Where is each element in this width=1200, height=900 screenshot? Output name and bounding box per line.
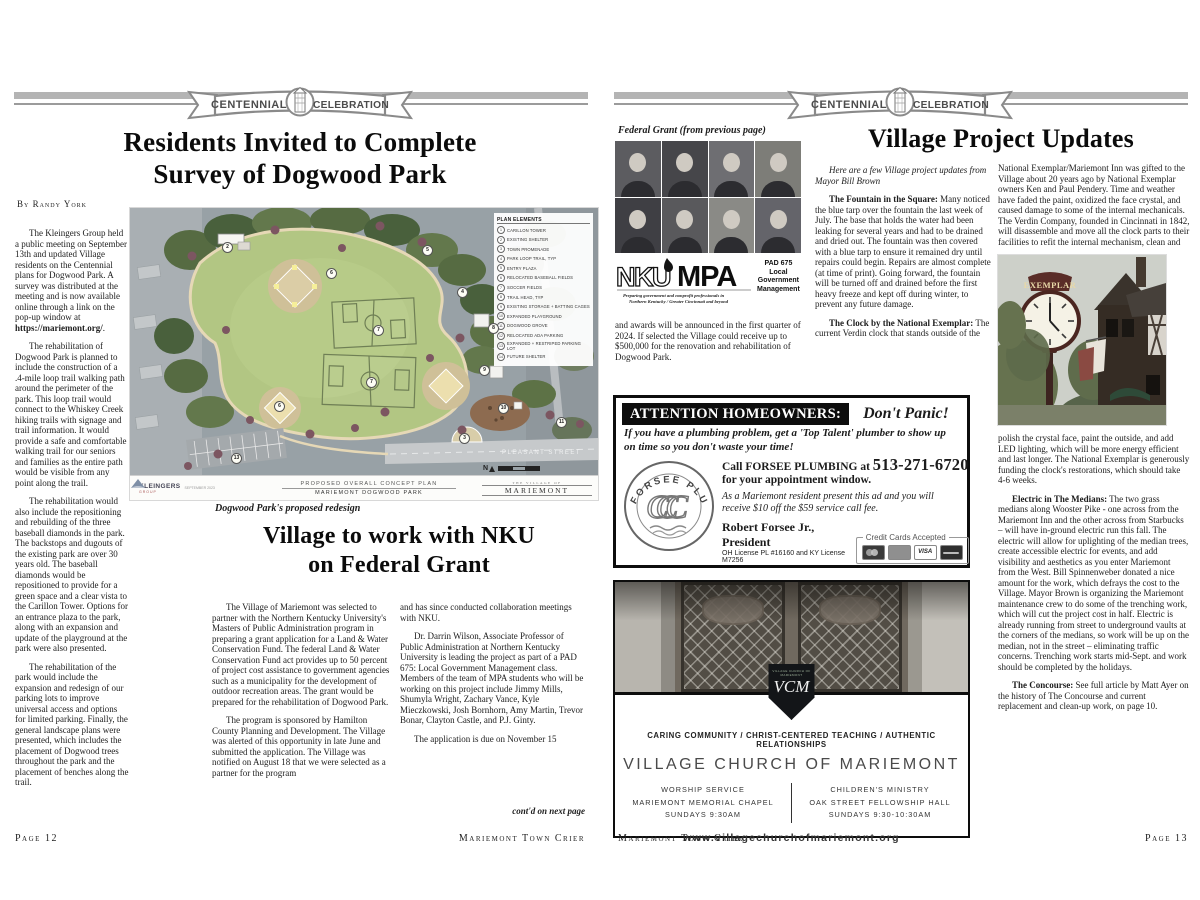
headshot-photo xyxy=(709,198,755,254)
paragraph-lead: The Fountain in the Square: xyxy=(829,194,938,204)
banner-text-celebration: CELEBRATION xyxy=(313,100,389,111)
continued-notice: cont'd on next page xyxy=(400,806,585,816)
firm-sub: GROUP xyxy=(139,490,181,494)
legend-number: 9 xyxy=(497,303,505,311)
nku-article-column-1: The Village of Mariemont was selected to… xyxy=(212,602,392,786)
byline: By Randy York xyxy=(17,199,87,209)
north-arrow: N xyxy=(483,465,540,472)
map-marker: 11 xyxy=(556,417,567,428)
visa-icon: VISA xyxy=(914,545,937,560)
resident-offer: As a Mariemont resident present this ad … xyxy=(722,491,952,515)
paragraph: and awards will be announced in the firs… xyxy=(615,320,802,362)
legend-number: 8 xyxy=(497,293,505,301)
legend-number: 10 xyxy=(497,312,505,320)
legend-label: RELOCATED BASEBALL FIELDS xyxy=(507,275,573,280)
paragraph: Electric in The Medians: The two grass m… xyxy=(998,494,1190,673)
legend-number: 6 xyxy=(497,274,505,282)
mastercard-icon xyxy=(862,545,885,560)
legend-number: 1 xyxy=(497,226,505,234)
dont-panic-text: Don't Panic! xyxy=(863,405,949,423)
logo-tagline-2: Northern Kentucky / Greater Cincinnati a… xyxy=(628,299,729,304)
pad-line: Local xyxy=(757,269,800,278)
page-number: Page 12 xyxy=(15,833,58,844)
legend-number: 2 xyxy=(497,236,505,244)
title-line-2: Survey of Dogwood Park xyxy=(70,158,530,190)
paragraph: Dr. Darrin Wilson, Associate Professor o… xyxy=(400,631,585,726)
legend-item: 6 RELOCATED BASEBALL FIELDS xyxy=(497,274,590,282)
survey-article-title: Residents Invited to Complete Survey of … xyxy=(70,126,530,190)
paragraph: polish the crystal face, paint the outsi… xyxy=(998,433,1190,486)
page-12: CENTENNIAL CELEBRATION Residents Invited… xyxy=(0,0,600,900)
paragraph: The Concourse: See full article by Matt … xyxy=(998,680,1190,712)
paragraph: The Fountain in the Square: Many noticed… xyxy=(815,194,995,310)
updates-column-1: Here are a few Village project updates f… xyxy=(815,165,995,347)
paragraph: The Village of Mariemont was selected to… xyxy=(212,602,392,707)
paragraph: The Clock by the National Exemplar: The … xyxy=(815,318,995,339)
map-marker: 4 xyxy=(457,287,468,298)
legend-label: CARILLON TOWER xyxy=(507,228,546,233)
plan-date: SEPTEMBER 2023 xyxy=(185,486,215,490)
phone-number: 513-271-6720 xyxy=(873,455,969,474)
legend-label: TRAIL HEAD, TYP xyxy=(507,295,543,300)
legend-item: 7 SOCCER FIELDS xyxy=(497,284,590,292)
legend-label: SOCCER FIELDS xyxy=(507,285,542,290)
map-marker: 13 xyxy=(231,453,242,464)
title-line-2: on Federal Grant xyxy=(212,551,586,580)
page-13: CENTENNIAL CELEBRATION Federal Grant (fr… xyxy=(600,0,1200,900)
legend-item: 3 TOWN PROMENADE xyxy=(497,245,590,253)
legend-item: 10 EXPANDED PLAYGROUND xyxy=(497,312,590,320)
legend-label: EXISTING SHELTER xyxy=(507,237,548,242)
banner-text-centennial: CENTENNIAL xyxy=(811,99,887,111)
title-line-1: Village to work with NKU xyxy=(212,522,586,551)
legend-item: 8 TRAIL HEAD, TYP xyxy=(497,293,590,301)
map-marker: 2 xyxy=(222,242,233,253)
map-marker: 3 xyxy=(459,433,470,444)
legend-item: 1 CARILLON TOWER xyxy=(497,226,590,234)
call-line-2: for your appointment window. xyxy=(722,474,969,486)
village-line2: MARIEMONT xyxy=(482,485,592,496)
legend-number: 7 xyxy=(497,284,505,292)
discover-icon xyxy=(940,545,963,560)
info-line: SUNDAYS 9:30-10:30AM xyxy=(792,809,968,822)
north-label: N xyxy=(483,465,488,472)
childrens-ministry-info: CHILDREN'S MINISTRYOAK STREET FELLOWSHIP… xyxy=(792,784,968,822)
map-marker: 8 xyxy=(488,323,499,334)
nku-mpa-logo: NKU MPA Preparing government and nonprof… xyxy=(615,256,801,314)
paragraph: The application is due on November 15 xyxy=(400,734,585,745)
paragraph-lead: The Clock by the National Exemplar: xyxy=(829,318,973,328)
legend-list: 1 CARILLON TOWER 2 EXISTING SHELTER 3 TO… xyxy=(497,226,590,361)
paragraph: National Exemplar/Mariemont Inn was gift… xyxy=(998,163,1190,247)
plan-title-line1: PROPOSED OVERALL CONCEPT PLAN xyxy=(256,481,482,487)
legend-item: 9 EXISTING STORAGE + BATTING CAGES xyxy=(497,303,590,311)
info-line: OAK STREET FELLOWSHIP HALL xyxy=(792,797,968,810)
centennial-banner: CENTENNIAL CELEBRATION xyxy=(785,84,1015,131)
legend-label: ENTRY PLAZA xyxy=(507,266,537,271)
church-name: VILLAGE CHURCH OF MARIEMONT xyxy=(615,756,968,774)
legend-item: 11 DOGWOOD GROVE xyxy=(497,322,590,330)
nku-article-column-2: and has since conducted collaboration me… xyxy=(400,602,585,752)
federal-grant-text: and awards will be announced in the firs… xyxy=(615,320,802,370)
headshot-photo xyxy=(662,198,708,254)
call-text: Call FORSEE PLUMBING at xyxy=(722,461,870,473)
crest-monogram: VCM xyxy=(769,677,815,697)
ad-tagline: If you have a plumbing problem, get a 'T… xyxy=(624,427,959,454)
plan-title-line2: MARIEMONT DOGWOOD PARK xyxy=(282,488,456,496)
park-concept-plan-image: PLEASANT STREET xyxy=(130,208,598,500)
clock-sign-text: EXEMPLAR xyxy=(1024,280,1077,290)
updates-column-2: National Exemplar/Mariemont Inn was gift… xyxy=(998,163,1190,720)
paragraph: The rehabilitation of Dogwood Park is pl… xyxy=(15,341,129,488)
paragraph-text: Many noticed the blue tarp over the foun… xyxy=(815,194,991,309)
centennial-banner: CENTENNIAL CELEBRATION xyxy=(185,84,415,131)
exemplar-clock-photo: EXEMPLAR xyxy=(998,255,1166,425)
paragraph-text: The Kleingers Group held a public meetin… xyxy=(15,228,127,322)
paragraph-text: The two grass medians along Wooster Pike… xyxy=(998,494,1189,672)
plan-title-block: KLEINGERS GROUP SEPTEMBER 2023 PROPOSED … xyxy=(130,475,598,500)
pad-675-label: PAD 675LocalGovernmentManagement xyxy=(757,256,800,294)
nku-letters: NKU xyxy=(616,262,670,292)
kleingers-logo: KLEINGERS GROUP SEPTEMBER 2023 xyxy=(136,483,256,494)
plan-elements-legend: PLAN ELEMENTS 1 CARILLON TOWER 2 EXISTIN… xyxy=(494,213,593,366)
forsee-plumbing-ad: ATTENTION HOMEOWNERS: Don't Panic! If yo… xyxy=(613,395,970,568)
legend-label: RELOCATED ADA PARKING xyxy=(507,333,563,338)
banner-text-celebration: CELEBRATION xyxy=(913,100,989,111)
legend-title: PLAN ELEMENTS xyxy=(497,217,590,224)
scale-bar xyxy=(498,466,512,471)
banner-text-centennial: CENTENNIAL xyxy=(211,99,287,111)
headshot-photo xyxy=(615,141,661,197)
url-text: https://mariemont.org/ xyxy=(15,323,103,333)
legend-number: 13 xyxy=(497,342,505,350)
legend-label: TOWN PROMENADE xyxy=(507,247,549,252)
info-line: CHILDREN'S MINISTRY xyxy=(792,784,968,797)
paragraph: The Kleingers Group held a public meetin… xyxy=(15,228,129,333)
kleingers-triangle-icon xyxy=(130,476,146,490)
legend-label: EXPANDED + RESTRIPED PARKING LOT xyxy=(507,341,590,351)
village-of-mariemont-logo: THE VILLAGE OF MARIEMONT xyxy=(482,481,592,496)
paragraph: The rehabilitation of the park would inc… xyxy=(15,662,129,788)
map-marker: 10 xyxy=(498,403,509,414)
map-caption: Dogwood Park's proposed redesign xyxy=(215,503,360,514)
legend-label: PARK LOOP TRAIL, TYP xyxy=(507,256,556,261)
village-church-ad: VILLAGE CHURCH OF MARIEMONT VCM CARING C… xyxy=(613,580,970,838)
paragraph: The rehabilitation would also include th… xyxy=(15,496,129,654)
info-line: SUNDAYS 9:30AM xyxy=(615,809,791,822)
pad-line: Government xyxy=(757,277,800,286)
scale-bar xyxy=(512,466,526,471)
legend-label: EXISTING STORAGE + BATTING CAGES xyxy=(507,304,590,309)
legend-label: FUTURE SHELTER xyxy=(507,354,546,359)
legend-item: 4 PARK LOOP TRAIL, TYP xyxy=(497,255,590,263)
worship-service-info: WORSHIP SERVICEMARIEMONT MEMORIAL CHAPEL… xyxy=(615,784,791,822)
legend-number: 4 xyxy=(497,255,505,263)
legend-item: 13 EXPANDED + RESTRIPED PARKING LOT xyxy=(497,341,590,351)
church-crest: VILLAGE CHURCH OF MARIEMONT VCM xyxy=(769,664,815,720)
page-number: Page 13 xyxy=(1145,833,1188,844)
attention-header: ATTENTION HOMEOWNERS: xyxy=(622,403,849,425)
info-line: MARIEMONT MEMORIAL CHAPEL xyxy=(615,797,791,810)
legend-number: 12 xyxy=(497,332,505,340)
credit-cards-box: Credit Cards Accepted VISA xyxy=(856,537,969,564)
info-line: WORSHIP SERVICE xyxy=(615,784,791,797)
legend-item: 14 FUTURE SHELTER xyxy=(497,353,590,361)
pad-line: Management xyxy=(757,286,800,295)
crest-caption: VILLAGE CHURCH OF MARIEMONT xyxy=(769,664,815,677)
mpa-letters: MPA xyxy=(677,261,737,293)
headshot-photo xyxy=(755,141,801,197)
amex-icon xyxy=(888,545,911,560)
publication-name: Mariemont Town Crier xyxy=(459,833,585,844)
nku-article-title: Village to work with NKU on Federal Gran… xyxy=(212,522,586,580)
credit-cards-label: Credit Cards Accepted xyxy=(863,533,949,542)
magazine-spread: CENTENNIAL CELEBRATION Residents Invited… xyxy=(0,0,1200,900)
paragraph: and has since conducted collaboration me… xyxy=(400,602,585,623)
paragraph: The program is sponsored by Hamilton Cou… xyxy=(212,715,392,778)
plan-title: PROPOSED OVERALL CONCEPT PLAN MARIEMONT … xyxy=(256,481,482,496)
scale-bar xyxy=(526,466,540,471)
publication-name: Mariemont Town Crier xyxy=(618,833,744,844)
legend-item: 12 RELOCATED ADA PARKING xyxy=(497,332,590,340)
ad-header: ATTENTION HOMEOWNERS: Don't Panic! xyxy=(622,403,961,425)
forsee-plumbing-logo: FORSEE PLUMBING CCC xyxy=(622,458,716,564)
legend-number: 3 xyxy=(497,245,505,253)
call-line: Call FORSEE PLUMBING at 513-271-6720 xyxy=(722,458,969,474)
headshot-photo xyxy=(755,198,801,254)
paragraph-text: . xyxy=(103,323,105,333)
map-marker: 9 xyxy=(479,365,490,376)
legend-item: 5 ENTRY PLAZA xyxy=(497,264,590,272)
church-values-line: CARING COMMUNITY / CHRIST-CENTERED TEACH… xyxy=(615,731,968,749)
intro-paragraph: Here are a few Village project updates f… xyxy=(815,165,995,186)
logo-tagline-1: Preparing government and nonprofit profe… xyxy=(623,293,725,298)
federal-grant-caption: Federal Grant (from previous page) xyxy=(618,125,766,136)
map-marker: 6 xyxy=(326,268,337,279)
survey-article-column: The Kleingers Group held a public meetin… xyxy=(15,228,129,834)
legend-item: 2 EXISTING SHELTER xyxy=(497,236,590,244)
headshot-photo xyxy=(709,141,755,197)
map-marker: 5 xyxy=(422,245,433,256)
headshot-photo xyxy=(662,141,708,197)
headshot-photo xyxy=(615,198,661,254)
map-marker: 6 xyxy=(274,401,285,412)
paragraph-lead: Electric in The Medians: xyxy=(1012,494,1107,504)
license-text: OH License PL #16160 and KY License M725… xyxy=(722,550,846,564)
legend-label: DOGWOOD GROVE xyxy=(507,323,548,328)
paragraph-lead: The Concourse: xyxy=(1012,680,1073,690)
president-name: Robert Forsee Jr., President xyxy=(722,520,846,550)
flame-icon xyxy=(664,258,673,272)
president-block: Robert Forsee Jr., President OH License … xyxy=(722,520,846,564)
legend-number: 5 xyxy=(497,264,505,272)
mpa-team-photo-grid xyxy=(615,141,801,253)
legend-label: EXPANDED PLAYGROUND xyxy=(507,314,562,319)
legend-number: 14 xyxy=(497,353,505,361)
map-marker: 7 xyxy=(373,325,384,336)
pad-line: PAD 675 xyxy=(757,260,800,269)
map-marker: 7 xyxy=(366,377,377,388)
